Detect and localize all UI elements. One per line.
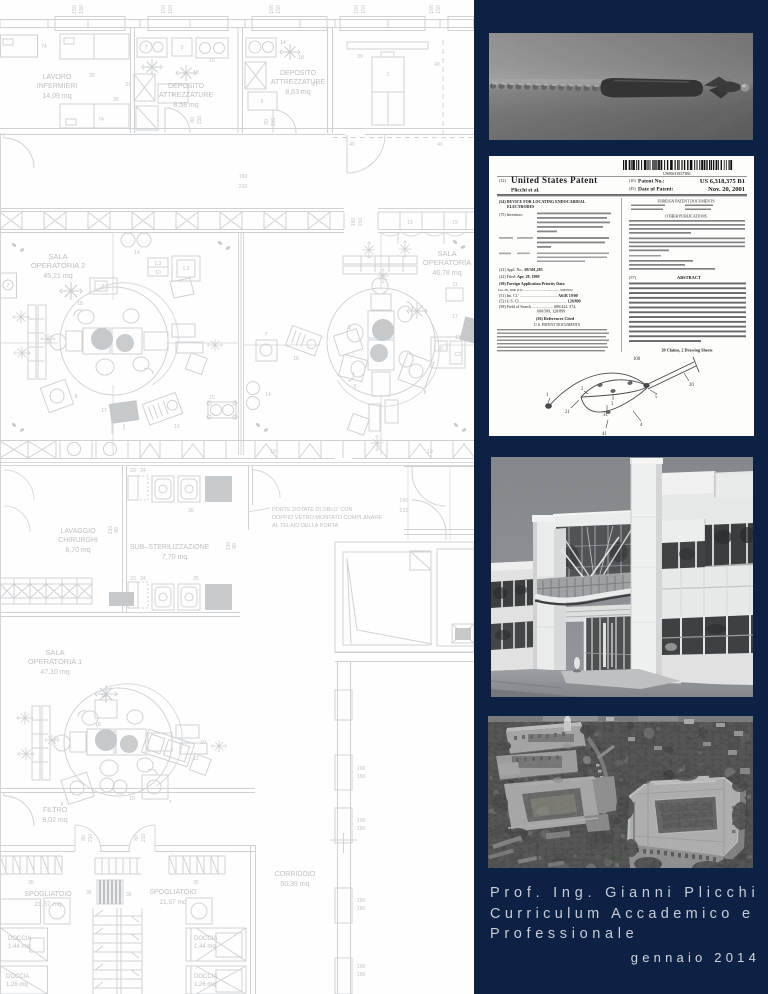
svg-text:40: 40 (349, 142, 355, 148)
svg-text:21,57 mq: 21,57 mq (159, 899, 186, 906)
svg-text:210: 210 (358, 218, 364, 227)
svg-text:23: 23 (130, 468, 136, 474)
svg-text:210: 210 (239, 184, 248, 190)
svg-text:DEPOSITO: DEPOSITO (168, 83, 205, 90)
svg-text:8: 8 (424, 390, 427, 396)
svg-text:(51) Int. Cl.7 ..............: (51) Int. Cl.7 .........................… (499, 293, 578, 298)
svg-text:Patent No.:: Patent No.: (638, 179, 665, 185)
svg-text:74: 74 (41, 44, 47, 50)
svg-text:(45): (45) (629, 186, 636, 191)
svg-text:150: 150 (276, 5, 282, 14)
svg-text:100: 100 (357, 766, 366, 772)
svg-text:ATTREZZATURE: ATTREZZATURE (159, 92, 214, 99)
svg-text:150: 150 (429, 5, 435, 14)
svg-text:5: 5 (261, 99, 264, 105)
svg-text:8,63 mq: 8,63 mq (285, 89, 310, 96)
svg-text:210: 210 (226, 542, 232, 551)
svg-text:(57): (57) (629, 275, 637, 280)
svg-text:(12): (12) (499, 178, 506, 183)
svg-text:C2: C2 (455, 352, 462, 358)
svg-text:150: 150 (357, 826, 366, 832)
svg-text:8,58 mq: 8,58 mq (173, 102, 198, 109)
svg-text:13: 13 (455, 335, 461, 341)
svg-text:SALA: SALA (437, 249, 456, 258)
svg-text:16: 16 (293, 356, 299, 362)
svg-text:100: 100 (357, 818, 366, 824)
svg-text:20 Claims, 2 Drawing Sheets: 20 Claims, 2 Drawing Sheets (661, 348, 712, 353)
svg-text:35: 35 (193, 880, 199, 886)
svg-text:24: 24 (140, 468, 146, 474)
svg-text:U.S. PATENT DOCUMENTS: U.S. PATENT DOCUMENTS (534, 323, 580, 327)
svg-text:17: 17 (101, 408, 107, 414)
svg-text:41: 41 (602, 432, 607, 436)
svg-text:1.2: 1.2 (183, 266, 190, 272)
svg-text:210: 210 (141, 834, 147, 843)
svg-text:40: 40 (437, 142, 443, 148)
svg-text:SALA: SALA (48, 252, 67, 261)
svg-text:27: 27 (125, 82, 131, 88)
svg-text:Nov. 20, 2001: Nov. 20, 2001 (708, 186, 745, 193)
svg-text:1,26 mq: 1,26 mq (194, 982, 216, 988)
svg-text:FOREIGN PATENT DOCUMENTS: FOREIGN PATENT DOCUMENTS (657, 200, 714, 204)
svg-text:(52) U.S. Cl. ...............: (52) U.S. Cl. ..........................… (499, 299, 581, 304)
svg-text:46,78 mq: 46,78 mq (432, 270, 461, 277)
svg-text:14: 14 (265, 392, 271, 398)
svg-text:27: 27 (312, 82, 318, 88)
svg-text:18: 18 (298, 55, 304, 61)
svg-text:31: 31 (603, 413, 608, 418)
svg-text:(30) Foreign Application: (30) Foreign Application Priority Data (499, 281, 564, 286)
svg-text:17: 17 (452, 314, 458, 320)
svg-text:PORTE DOTATE DI OBLO' CON: PORTE DOTATE DI OBLO' CON (272, 507, 353, 513)
svg-text:210: 210 (197, 116, 203, 125)
svg-text:160: 160 (399, 498, 408, 504)
svg-text:ELECTRODES: ELECTRODES (507, 204, 535, 209)
svg-text:18: 18 (193, 70, 199, 76)
svg-text:SPOGLIATOIO: SPOGLIATOIO (24, 891, 72, 898)
svg-text:26: 26 (113, 97, 119, 103)
svg-text:7: 7 (169, 800, 172, 806)
svg-text:1: 1 (387, 72, 390, 78)
svg-text:14: 14 (280, 40, 286, 46)
svg-text:DOCCIA: DOCCIA (194, 974, 217, 980)
svg-text:(21) Appl. No.: 09/301,283: (21) Appl. No.: 09/301,283 (499, 267, 543, 272)
svg-text:DOCCIA: DOCCIA (6, 974, 29, 980)
svg-text:14,09 mq: 14,09 mq (42, 93, 71, 100)
svg-text:DEPOSITO: DEPOSITO (280, 70, 317, 77)
svg-text:(22) Filed: Apr. 28, 1: (22) Filed: Apr. 28, 1999 (499, 274, 540, 279)
svg-text:47,10 mq: 47,10 mq (40, 669, 69, 676)
svg-text:7: 7 (265, 332, 268, 338)
svg-text:24: 24 (140, 576, 146, 582)
svg-text:19: 19 (427, 449, 433, 455)
svg-text:160: 160 (351, 218, 357, 227)
svg-text:OPERATORIA 1: OPERATORIA 1 (28, 657, 82, 666)
svg-text:SPOGLIATOIO: SPOGLIATOIO (149, 889, 197, 896)
svg-text:7: 7 (7, 283, 10, 289)
svg-text:7,70 mq: 7,70 mq (162, 554, 187, 561)
svg-text:14: 14 (101, 694, 107, 700)
svg-text:80: 80 (134, 835, 140, 841)
svg-text:14: 14 (134, 250, 140, 256)
svg-text:10: 10 (437, 346, 443, 352)
svg-text:50,39 mq: 50,39 mq (280, 881, 309, 888)
svg-text:1,44 mq: 1,44 mq (8, 944, 30, 950)
svg-text:150: 150 (354, 5, 360, 14)
svg-text:39: 39 (357, 54, 363, 60)
svg-text:80: 80 (232, 543, 238, 549)
svg-text:DOPPIO VETRO MONTATO COMPLANAR: DOPPIO VETRO MONTATO COMPLANARE (272, 515, 382, 521)
svg-text:8: 8 (75, 394, 78, 400)
svg-text:9,02 mq: 9,02 mq (42, 817, 67, 824)
svg-text:26: 26 (89, 73, 95, 79)
svg-text:(10): (10) (629, 178, 636, 183)
svg-text:20: 20 (689, 383, 694, 388)
svg-text:26: 26 (188, 508, 194, 514)
svg-text:AL TELAIO DELLA PORTA: AL TELAIO DELLA PORTA (272, 523, 338, 529)
svg-text:19: 19 (407, 220, 413, 226)
svg-text:80: 80 (114, 527, 120, 533)
svg-text:Plicchi et al.: Plicchi et al. (511, 188, 540, 194)
svg-text:45,21 mq: 45,21 mq (43, 273, 72, 280)
svg-text:150: 150 (72, 5, 78, 14)
svg-text:210: 210 (88, 834, 94, 843)
svg-text:180: 180 (357, 906, 366, 912)
svg-text:LAVORO: LAVORO (43, 74, 72, 81)
svg-text:US 6,318,375 B1: US 6,318,375 B1 (700, 178, 745, 185)
svg-text:150: 150 (269, 5, 275, 14)
svg-text:150: 150 (357, 972, 366, 978)
svg-text:150: 150 (436, 5, 442, 14)
svg-text:US006318375B1: US006318375B1 (663, 171, 691, 176)
svg-text:1,44 mq: 1,44 mq (194, 944, 216, 950)
svg-text:9: 9 (181, 45, 184, 51)
svg-text:INFERMIERI: INFERMIERI (37, 83, 78, 90)
svg-text:SUB–STERILIZZAZIONE: SUB–STERILIZZAZIONE (130, 544, 210, 551)
svg-text:1,26 mq: 1,26 mq (6, 982, 28, 988)
svg-text:100: 100 (633, 357, 641, 362)
svg-text:CHIRURGHI: CHIRURGHI (58, 537, 98, 544)
svg-text:OPERATORIA: OPERATORIA (423, 258, 471, 267)
svg-text:21: 21 (565, 410, 570, 415)
svg-text:SALA: SALA (45, 648, 64, 657)
svg-text:(75) Inventors:: (75) Inventors: (499, 212, 523, 217)
svg-text:15: 15 (129, 796, 135, 802)
svg-text:19: 19 (452, 220, 458, 226)
svg-text:36: 36 (126, 892, 132, 898)
svg-text:150: 150 (168, 5, 174, 14)
svg-text:26: 26 (193, 576, 199, 582)
svg-text:150: 150 (357, 774, 366, 780)
svg-text:OTHER PUBLICATIONS: OTHER PUBLICATIONS (665, 215, 707, 219)
svg-text:18: 18 (77, 301, 83, 307)
svg-text:150: 150 (161, 5, 167, 14)
svg-text:160: 160 (239, 174, 248, 180)
svg-text:21,57 mq: 21,57 mq (34, 901, 61, 908)
svg-text:LAVAGGIO: LAVAGGIO (60, 528, 96, 535)
svg-text:ABSTRACT: ABSTRACT (677, 275, 701, 280)
svg-text:11: 11 (452, 282, 457, 288)
svg-text:CORRIDOIO: CORRIDOIO (275, 871, 316, 878)
svg-text:DOCCIA: DOCCIA (8, 936, 31, 942)
svg-text:210: 210 (108, 526, 114, 535)
svg-text:74: 74 (98, 117, 104, 123)
svg-text:210: 210 (399, 508, 408, 514)
svg-text:150: 150 (357, 898, 366, 904)
svg-text:150: 150 (79, 5, 85, 14)
svg-text:Date of Patent:: Date of Patent: (638, 187, 674, 193)
svg-text:10: 10 (155, 270, 161, 276)
svg-text:150: 150 (361, 5, 367, 14)
svg-text:15: 15 (209, 58, 215, 64)
svg-text:(56) References: (56) References Cited (536, 316, 575, 321)
svg-text:FILTRO: FILTRO (43, 807, 68, 814)
svg-text:36: 36 (86, 890, 92, 896)
svg-text:80: 80 (81, 835, 87, 841)
svg-text:35: 35 (28, 880, 34, 886)
svg-text:1.3: 1.3 (155, 261, 162, 267)
svg-text:16: 16 (174, 424, 180, 430)
svg-text:15: 15 (209, 395, 215, 401)
svg-text:23: 23 (130, 576, 136, 582)
svg-text:40: 40 (434, 62, 440, 68)
svg-text:19: 19 (270, 449, 276, 455)
svg-text:210: 210 (271, 118, 277, 127)
svg-text:DOCCIA: DOCCIA (194, 936, 217, 942)
svg-text:7: 7 (145, 45, 148, 51)
svg-text:80: 80 (190, 117, 196, 123)
svg-text:OPERATORIA 2: OPERATORIA 2 (31, 261, 85, 270)
svg-text:8,70 mq: 8,70 mq (65, 547, 90, 554)
svg-text:100: 100 (357, 964, 366, 970)
svg-text:80: 80 (264, 119, 270, 125)
